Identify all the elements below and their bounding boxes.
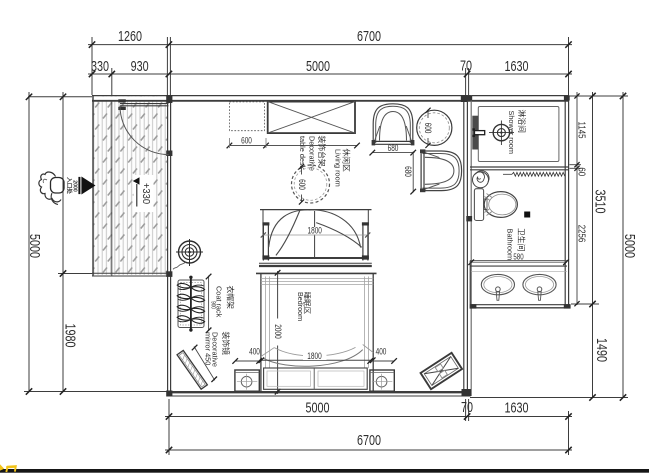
svg-text:680: 680 (403, 166, 413, 177)
svg-text:1145: 1145 (576, 122, 587, 139)
svg-text:5000: 5000 (621, 234, 638, 258)
svg-text:400: 400 (376, 346, 387, 356)
svg-text:70: 70 (460, 57, 472, 74)
svg-text:930: 930 (131, 57, 149, 74)
svg-text:1260: 1260 (118, 27, 142, 44)
svg-text:5000: 5000 (26, 234, 43, 258)
svg-text:1800: 1800 (308, 226, 323, 236)
svg-text:+330: +330 (140, 183, 152, 205)
svg-text:330: 330 (91, 57, 109, 74)
svg-text:3510: 3510 (592, 190, 609, 214)
svg-text:table desk: table desk (298, 136, 307, 170)
svg-text:Shower room: Shower room (507, 111, 516, 154)
svg-text:6700: 6700 (357, 431, 381, 448)
svg-text:装饰台架: 装饰台架 (317, 136, 327, 167)
svg-text:400: 400 (249, 346, 260, 356)
svg-text:mirror 450: mirror 450 (203, 332, 212, 365)
svg-text:2000: 2000 (72, 180, 78, 192)
svg-text:600: 600 (297, 179, 307, 190)
svg-text:70: 70 (461, 398, 473, 415)
svg-text:Living room: Living room (334, 149, 343, 187)
svg-text:5000: 5000 (306, 399, 330, 416)
svg-text:卫生间: 卫生间 (517, 228, 527, 252)
svg-text:2000: 2000 (273, 324, 283, 339)
svg-text:Coat rack: Coat rack (215, 286, 224, 318)
svg-text:600: 600 (241, 135, 252, 145)
svg-text:60: 60 (576, 167, 587, 176)
svg-text:1630: 1630 (505, 399, 529, 416)
svg-text:衣帽架: 衣帽架 (226, 286, 236, 310)
svg-text:1490: 1490 (593, 338, 610, 362)
svg-text:680: 680 (388, 143, 399, 153)
svg-text:1630: 1630 (505, 57, 529, 74)
svg-text:淋浴间: 淋浴间 (517, 110, 527, 134)
svg-text:600: 600 (423, 123, 433, 134)
svg-text:1800: 1800 (307, 351, 322, 361)
svg-text:Bedroom: Bedroom (296, 292, 305, 321)
svg-text:装饰镜: 装饰镜 (221, 332, 231, 356)
svg-text:2256: 2256 (576, 225, 587, 243)
svg-text:5000: 5000 (306, 57, 330, 74)
svg-text:6700: 6700 (357, 27, 381, 44)
svg-text:1980: 1980 (62, 324, 79, 348)
